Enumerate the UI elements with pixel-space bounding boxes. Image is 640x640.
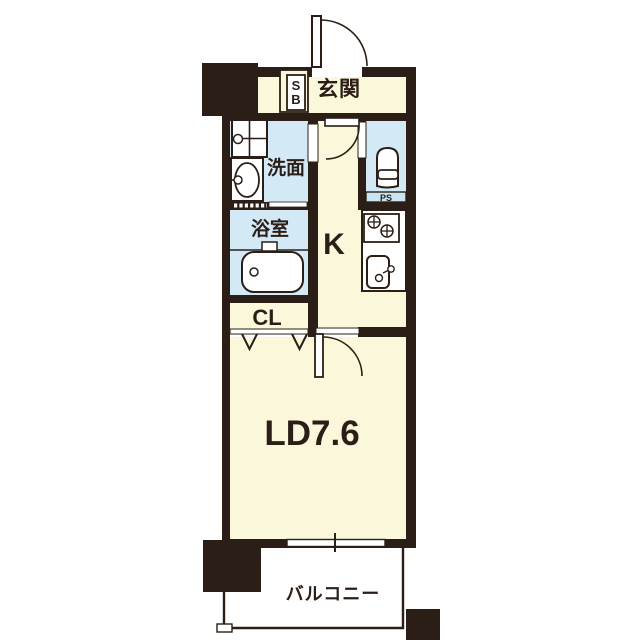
hall-door-leaf <box>325 118 359 126</box>
ld-door-leaf <box>315 334 323 377</box>
wall-left <box>222 113 230 548</box>
shoe-box-label-s: S <box>292 78 301 93</box>
toilet-icon <box>377 148 398 188</box>
wall-top-left-block <box>202 63 258 116</box>
vanity-tap-icon <box>234 176 242 184</box>
wall-kitchen-ld <box>358 327 416 337</box>
balcony-label: バルコニー <box>286 584 381 604</box>
floor-plan-drawing: 玄関 S B 洗面 浴室 K PS CL LD7.6 バルコニー <box>0 0 640 640</box>
bathroom-door-panel <box>269 202 307 207</box>
bath-faucet-icon <box>262 242 277 251</box>
living-dining-label: LD7.6 <box>264 414 359 453</box>
pipe-space-label: PS <box>380 193 392 203</box>
pillar-bottom-left <box>203 540 261 592</box>
bathroom-label: 浴室 <box>251 217 289 240</box>
washroom-doorway-gap <box>308 124 318 162</box>
balcony-partition-marker <box>217 624 232 632</box>
bathtub-drain-icon <box>250 268 258 276</box>
entrance-label: 玄関 <box>317 77 361 101</box>
toilet-cistern-icon <box>378 170 398 179</box>
floor-plan-canvas: 玄関 S B 洗面 浴室 K PS CL LD7.6 バルコニー <box>0 0 640 640</box>
sink-tap-icon <box>388 266 394 272</box>
kitchen-fixtures <box>362 210 406 291</box>
washroom-fixtures <box>231 120 267 201</box>
wall-below-pipe-space <box>358 202 416 210</box>
wall-bathroom-closet <box>222 295 318 303</box>
sink-drain-icon <box>376 275 383 282</box>
pillar-bottom-right <box>406 609 440 640</box>
closet-label: CL <box>252 305 281 330</box>
washroom-label: 洗面 <box>267 156 305 179</box>
kitchen-label: K <box>323 228 345 261</box>
wall-right <box>406 67 416 548</box>
entrance-door-leaf <box>312 16 321 67</box>
washer-drain-icon <box>234 135 243 144</box>
shoe-box-label-b: B <box>291 92 300 107</box>
